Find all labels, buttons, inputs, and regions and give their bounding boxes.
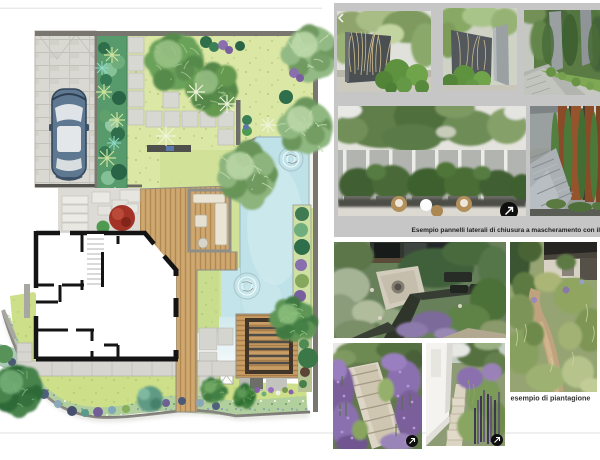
svg-text:esempio di piantagione: esempio di piantagione <box>511 394 591 403</box>
svg-text:Esempio pannelli laterali di c: Esempio pannelli laterali di chiusura a … <box>412 227 600 234</box>
